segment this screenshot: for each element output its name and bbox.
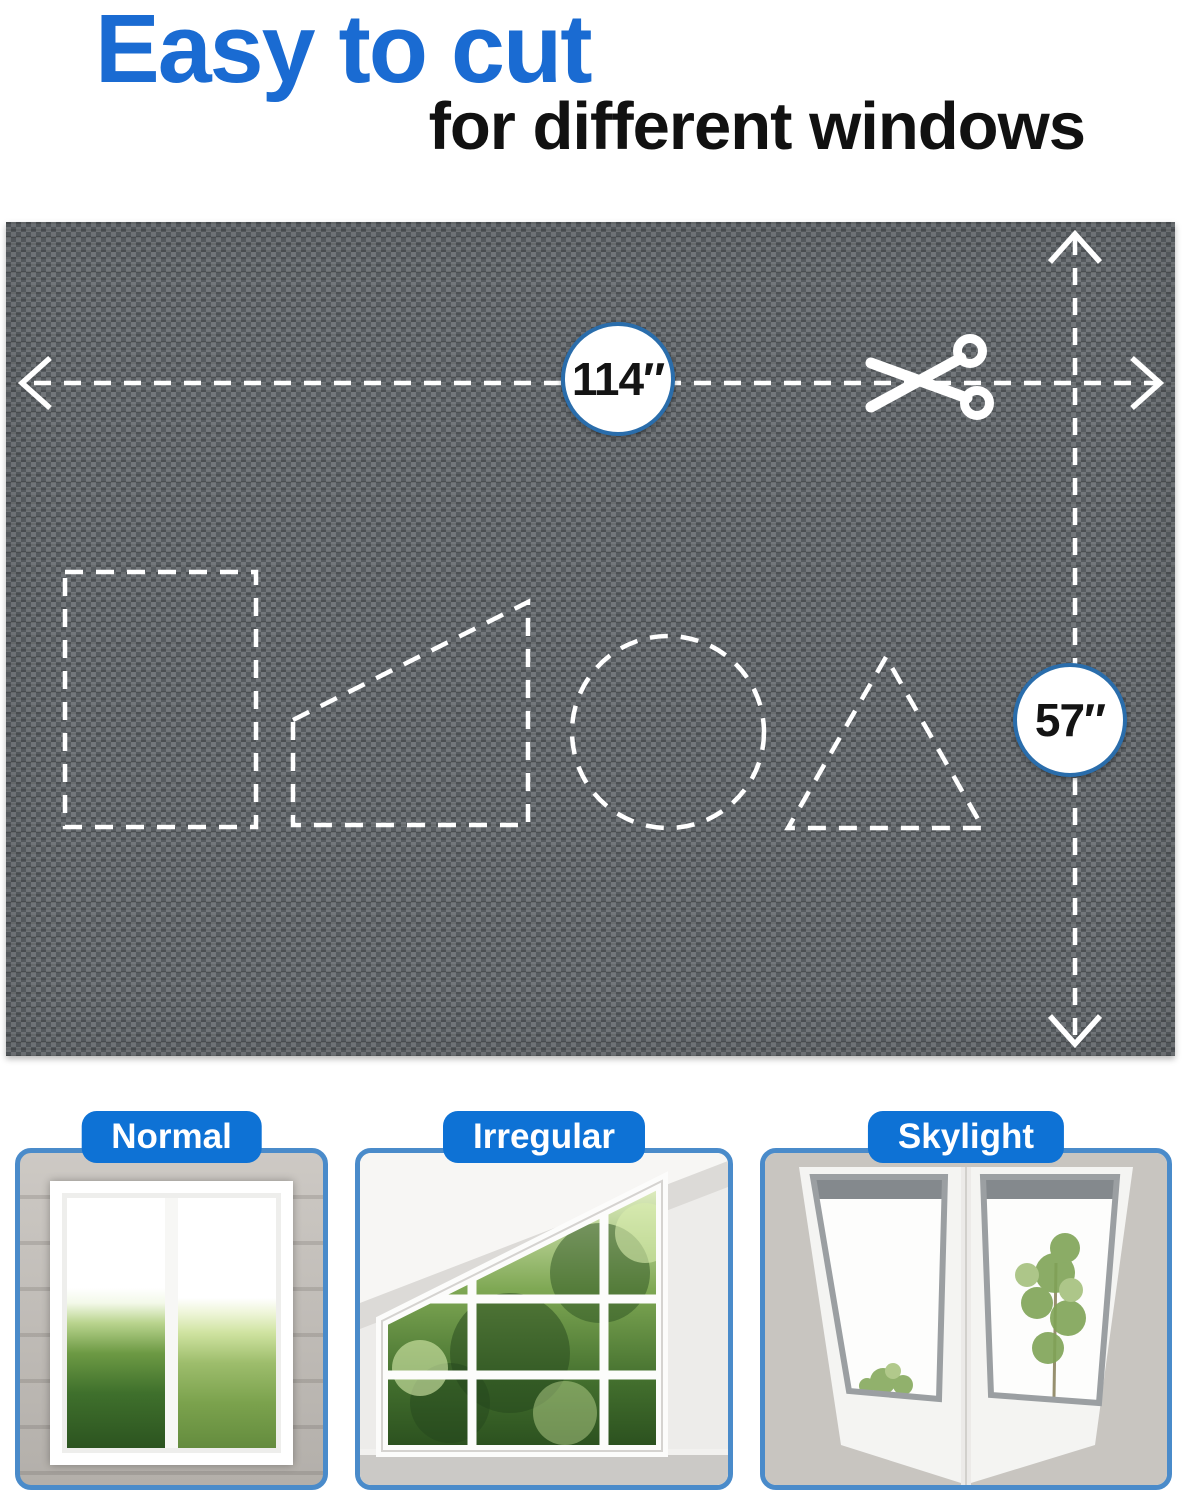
floor	[360, 1455, 728, 1485]
window-card-skylight: Skylight	[760, 1148, 1172, 1490]
window-pane-left	[67, 1198, 165, 1448]
window-pane-right	[178, 1198, 276, 1448]
irregular-window-photo	[355, 1148, 733, 1490]
window-type-label-normal: Normal	[81, 1111, 262, 1163]
width-value: 114″	[572, 352, 664, 406]
header: Easy to cut for different windows	[0, 0, 1189, 160]
skylight-window-photo	[760, 1148, 1172, 1490]
page-subtitle: for different windows	[0, 93, 1189, 160]
skylight-window-art	[765, 1153, 1167, 1485]
irregular-window-art	[360, 1153, 728, 1485]
cut-guide-triangle	[788, 657, 983, 828]
window-card-irregular: Irregular	[355, 1148, 733, 1490]
height-arrow-icon	[1050, 234, 1100, 1044]
scissors-icon	[871, 339, 990, 416]
width-measurement-badge: 114″	[561, 322, 675, 436]
height-measurement-badge: 57″	[1013, 663, 1127, 777]
cut-guide-rectangle	[65, 572, 256, 827]
window-type-label-irregular: Irregular	[443, 1111, 645, 1163]
window-type-cards: Normal Irregular	[15, 1148, 1172, 1490]
window-type-label-skylight: Skylight	[868, 1111, 1064, 1163]
normal-window-photo	[15, 1148, 328, 1490]
height-value: 57″	[1035, 693, 1105, 747]
cut-guide-trapezoid	[293, 602, 528, 825]
cut-guide-circle	[572, 636, 764, 828]
product-infographic: Easy to cut for different windows	[0, 0, 1189, 1500]
window-frame	[62, 1193, 280, 1453]
window-card-normal: Normal	[15, 1148, 328, 1490]
page-title: Easy to cut	[0, 0, 1189, 97]
fabric-swatch: 114″ 57″	[6, 222, 1175, 1056]
casement-window	[50, 1181, 292, 1465]
